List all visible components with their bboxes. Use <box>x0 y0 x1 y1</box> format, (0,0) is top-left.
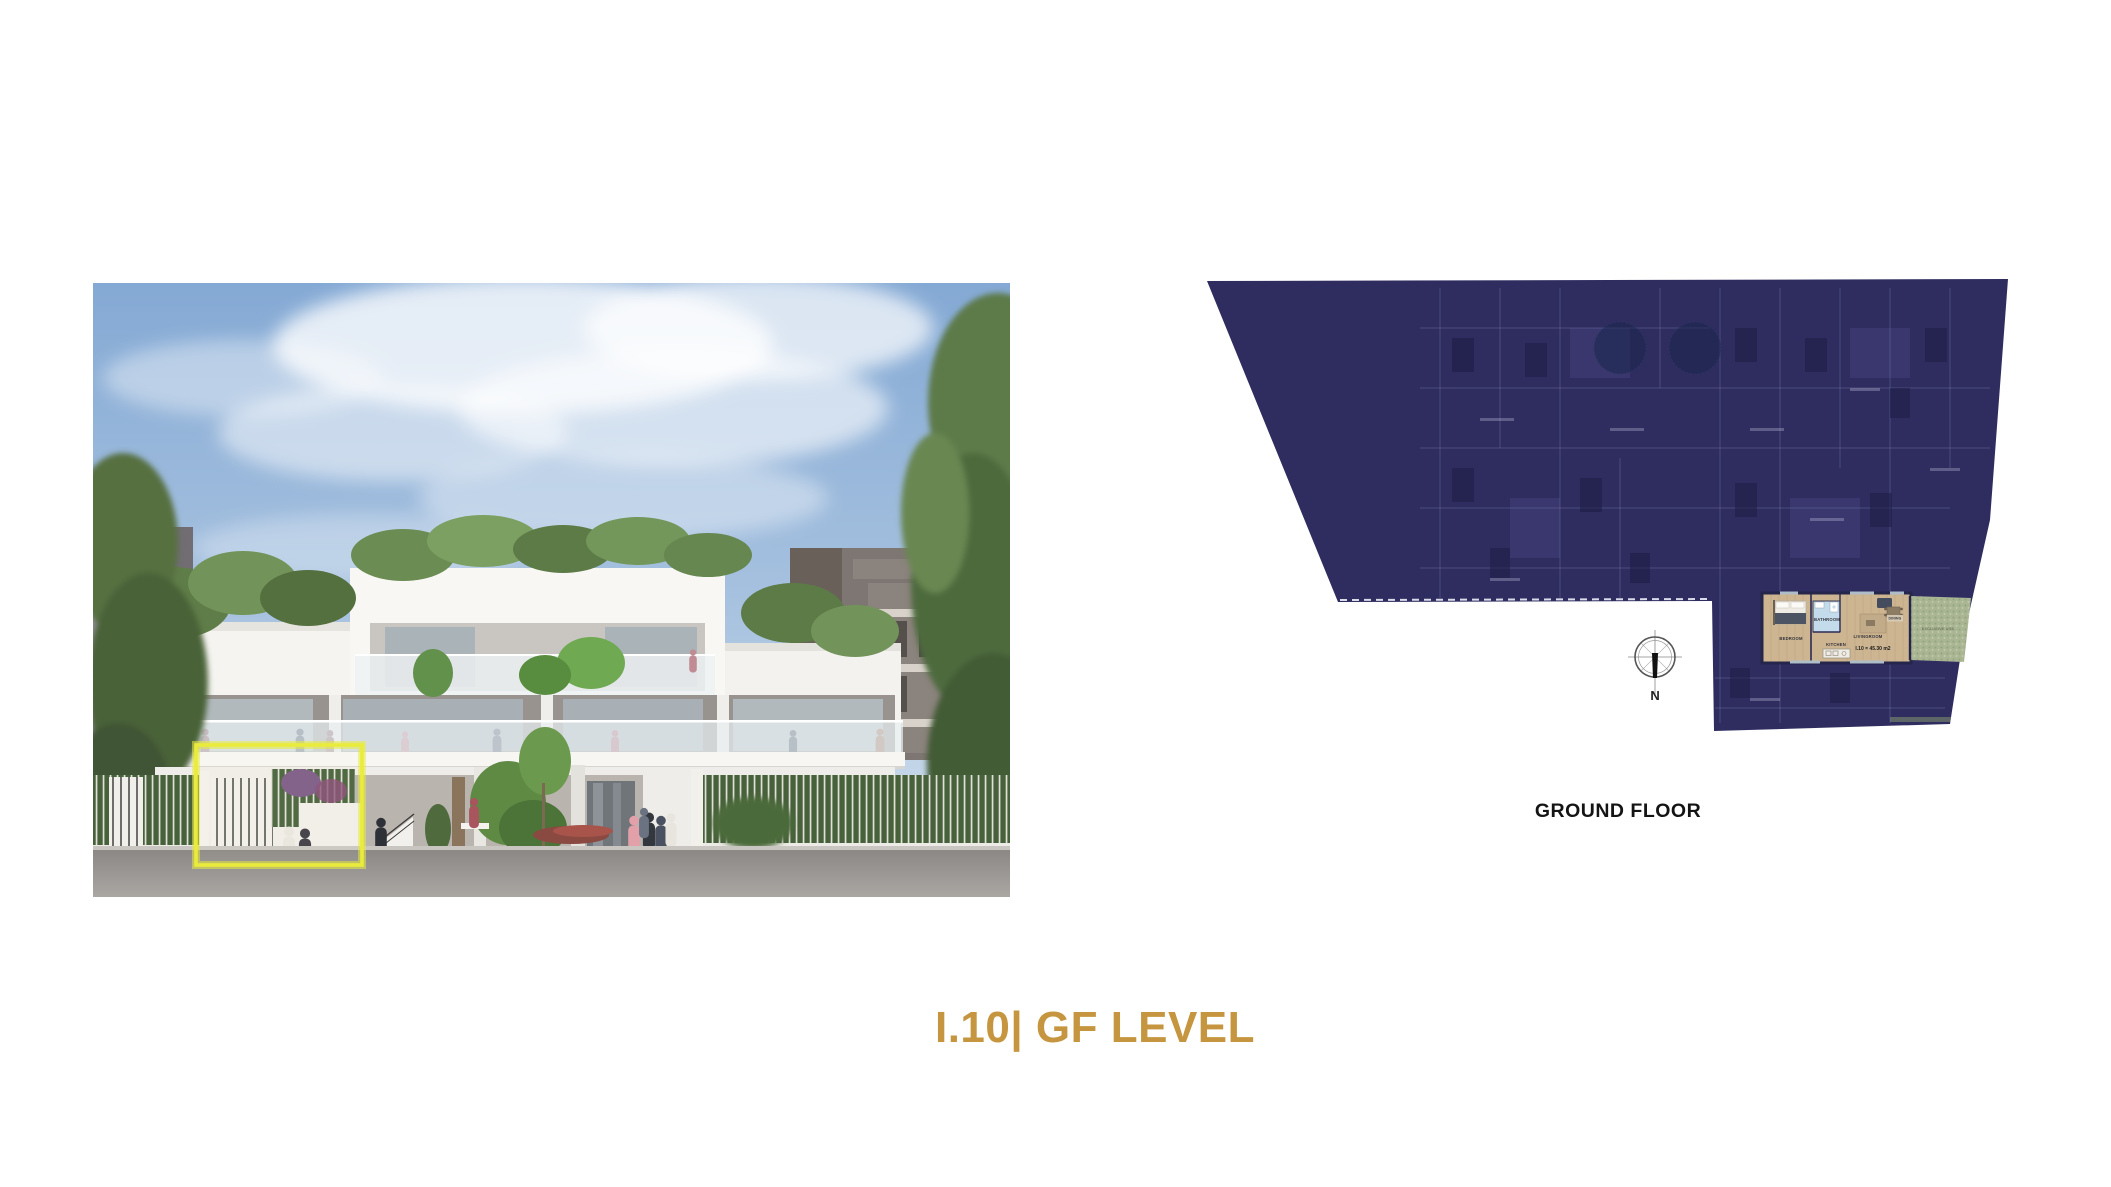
slide: BEDROOM BATHROOM KITCHEN LIVINGROOM DINI… <box>0 0 2111 1187</box>
entrance-wood-panel <box>452 777 465 853</box>
north-compass-icon: N <box>1628 630 1682 703</box>
dining-label: DINING <box>1888 617 1901 621</box>
bedroom <box>1773 600 1806 625</box>
exclusive-use-garden: EXCLUSIVE USE <box>1910 596 1971 662</box>
compass-needle <box>1652 653 1658 678</box>
unit-highlight-glow <box>196 745 362 865</box>
building-render-image <box>93 283 1010 897</box>
gate <box>109 777 143 847</box>
ground-floor-caption: GROUND FLOOR <box>1535 800 1701 822</box>
bedroom-label: BEDROOM <box>1779 636 1803 641</box>
unit-area-label: I.10 = 45.30 m2 <box>1855 646 1890 652</box>
bathroom-label: BATHROOM <box>1814 617 1840 622</box>
pedestrian <box>469 798 479 828</box>
livingroom-label: LIVINGROOM <box>1854 634 1883 639</box>
page-title: I.10| GF LEVEL <box>875 1002 1315 1054</box>
compass-north-label: N <box>1650 688 1659 703</box>
floor-plan-image: BEDROOM BATHROOM KITCHEN LIVINGROOM DINI… <box>1190 268 2060 888</box>
kitchen <box>1823 649 1850 658</box>
garden-label: EXCLUSIVE USE <box>1922 627 1955 631</box>
unit-i10-plan: BEDROOM BATHROOM KITCHEN LIVINGROOM DINI… <box>1762 592 1971 664</box>
kitchen-label: KITCHEN <box>1826 642 1846 647</box>
